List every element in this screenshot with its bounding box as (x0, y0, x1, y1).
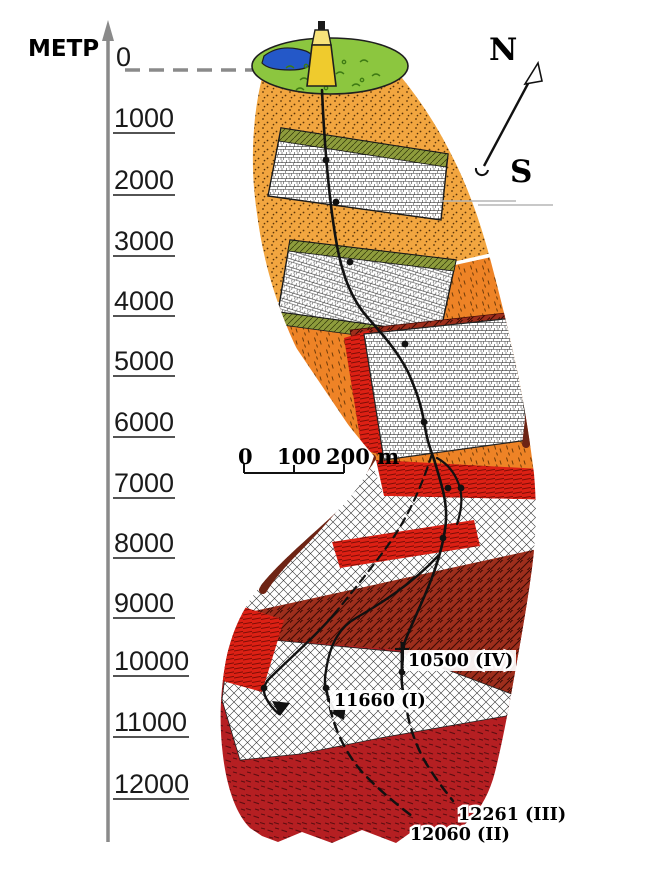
axis-tick-label: 1000 (114, 103, 174, 133)
compass-south-label: S (510, 154, 532, 190)
axis-tick-label: 2000 (114, 165, 174, 195)
axis-tick-label: 3000 (114, 226, 174, 256)
compass-north-label: N (489, 32, 517, 68)
borehole-label-iv: 10500 (IV) (408, 651, 513, 671)
axis-tick-label: 5000 (114, 346, 174, 376)
compass-arrowhead-icon (525, 63, 542, 84)
scale-label-0: 0 (238, 444, 253, 469)
surface-scene (252, 21, 408, 94)
borehole-label-ii: 12060 (II) (410, 825, 510, 845)
compass-needle (484, 78, 531, 166)
axis-tick-label: 0 (116, 42, 131, 72)
slab-mid (364, 318, 528, 460)
axis-tick-label: 11000 (114, 707, 187, 737)
geological-borehole-diagram: МЕТР 0 1000 2000 3000 4000 5000 6000 700… (0, 0, 646, 882)
scale-bar: 0 100 200 m (238, 444, 399, 473)
scale-label-100: 100 (277, 444, 321, 469)
axis-tick-label: 8000 (114, 528, 174, 558)
borehole-label-iii: 12261 (III) (458, 805, 566, 825)
axis-unit-label: МЕТР (28, 36, 99, 62)
axis-tick-label: 4000 (114, 286, 174, 316)
axis-tick-label: 7000 (114, 468, 174, 498)
axis-arrowhead-icon (102, 20, 114, 41)
borehole-label-i: 11660 (I) (334, 691, 426, 711)
compass-tail-hook-icon (476, 168, 488, 175)
scale-label-200: 200 m (326, 444, 399, 469)
derrick-top-section (312, 30, 331, 45)
axis-tick-label: 9000 (114, 588, 174, 618)
derrick-crown-icon (318, 21, 325, 30)
axis-tick-label: 6000 (114, 407, 174, 437)
axis-tick-label: 12000 (114, 769, 189, 799)
diagram-canvas: МЕТР 0 1000 2000 3000 4000 5000 6000 700… (0, 0, 646, 882)
derrick-tower (307, 45, 336, 86)
axis-tick-label: 10000 (114, 646, 189, 676)
